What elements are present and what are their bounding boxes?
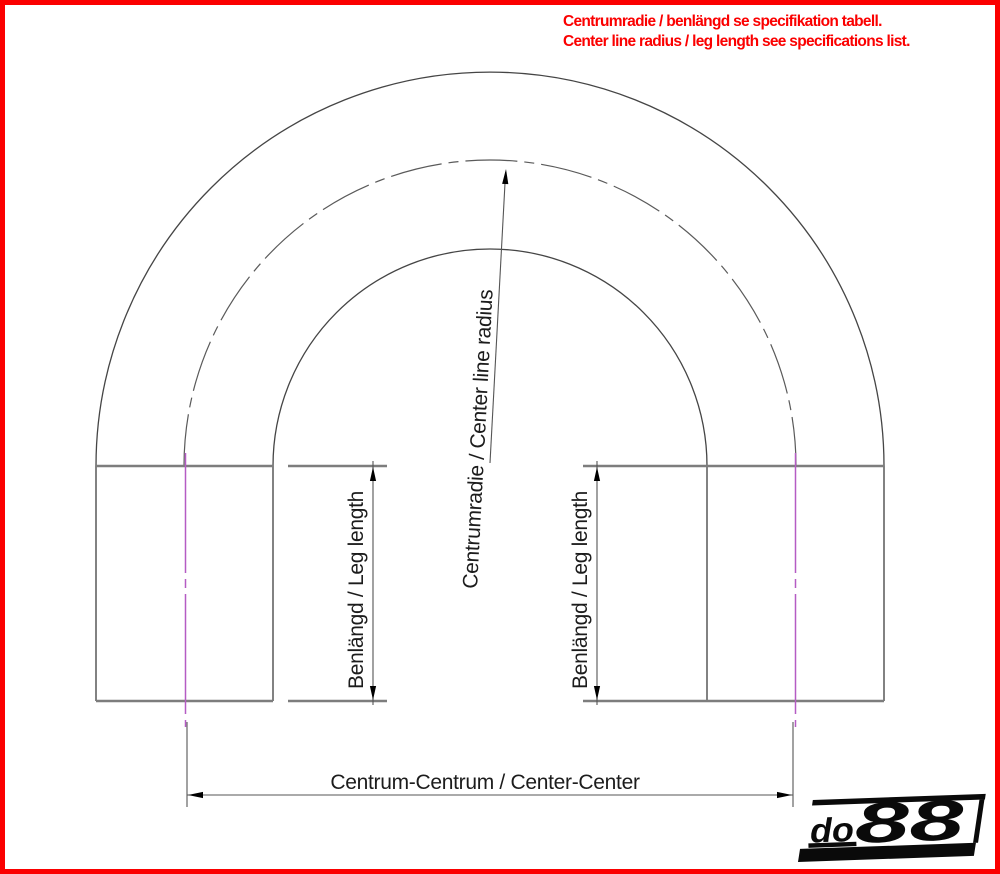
drawing-page: Centrumradie / benlängd se specifikation… [0,0,1000,874]
logo-text-do: do [809,811,854,851]
logo-text-88: 88 [854,788,966,856]
logo-right-bar [972,799,986,842]
do88-logo: do 88 [5,5,995,869]
